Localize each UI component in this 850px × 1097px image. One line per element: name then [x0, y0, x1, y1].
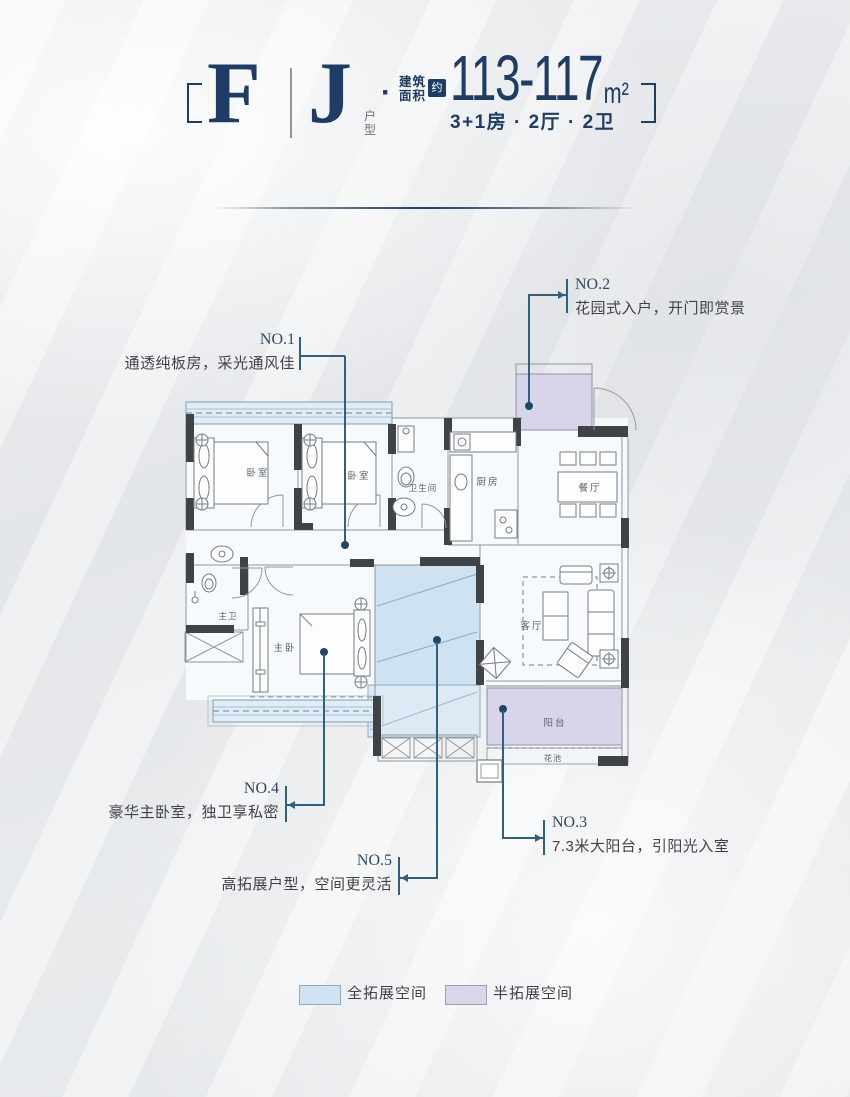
annotation-4-text: 豪华主卧室，独卫享私密 — [79, 801, 279, 822]
anno4-arrow — [288, 801, 295, 809]
annotation-3-text: 7.3米大阳台，引阳光入室 — [552, 835, 752, 856]
annotation-2-text: 花园式入户，开门即赏景 — [575, 297, 775, 318]
wardrobe — [253, 608, 268, 692]
floor-plan-svg: 卧室 卧室 卫生间 厨房 餐厅 主卫 主卧 客厅 阳台 花池 — [170, 360, 640, 792]
anno5-vline — [436, 642, 438, 879]
room-label-dining: 餐厅 — [578, 482, 601, 494]
anno3-tick — [543, 820, 545, 855]
half-expansion-balcony — [487, 688, 622, 745]
annotation-3: NO.3 7.3米大阳台，引阳光入室 — [552, 814, 752, 856]
anno2-dot — [525, 402, 533, 410]
area-value: 113-117 — [450, 46, 602, 110]
anno2-vline — [528, 294, 530, 406]
area-unit: m² — [604, 77, 629, 110]
anno1-tick — [299, 337, 301, 370]
room-label-bathroom: 卫生间 — [409, 483, 438, 493]
area-label-line1: 建筑 — [399, 75, 426, 89]
annotation-5-number: NO.5 — [192, 852, 392, 870]
area-label-line2: 面积 — [399, 89, 426, 103]
annotation-1: NO.1 通透纯板房，采光通风佳 — [95, 331, 295, 373]
anno3-vline — [502, 711, 504, 839]
anno5-arrow — [401, 874, 408, 882]
room-label-master-bedroom: 主卧 — [273, 642, 296, 654]
header-divider-line — [214, 207, 636, 209]
legend-label-half-expansion: 半拓展空间 — [493, 984, 573, 1004]
anno2-tick — [566, 279, 568, 313]
unit-type-suffix: 户型 — [364, 109, 379, 137]
room-label-master-bath: 主卫 — [218, 611, 237, 621]
annotation-4-number: NO.4 — [79, 780, 279, 798]
header-bracket-left — [187, 83, 202, 123]
annotation-5: NO.5 高拓展户型，空间更灵活 — [192, 852, 392, 894]
legend-swatch-full-expansion — [299, 985, 341, 1005]
anno4-tick — [285, 786, 287, 822]
area-approx-badge: 约 — [428, 79, 446, 97]
unit-type-letter-f: F — [207, 50, 261, 138]
annotation-2: NO.2 花园式入户，开门即赏景 — [575, 276, 775, 318]
anno2-arrow — [558, 291, 565, 299]
room-label-kitchen: 厨房 — [476, 476, 499, 488]
annotation-4: NO.4 豪华主卧室，独卫享私密 — [79, 780, 279, 822]
full-expansion-flex-room — [375, 565, 480, 685]
header-dot: · — [381, 78, 391, 108]
annotation-1-number: NO.1 — [95, 331, 295, 349]
annotation-1-text: 通透纯板房，采光通风佳 — [95, 352, 295, 373]
anno1-vline — [344, 356, 346, 546]
header-letter-divider — [290, 68, 292, 138]
annotation-2-number: NO.2 — [575, 276, 775, 294]
area-value-row: 113-117m² — [450, 46, 629, 110]
floorplan-poster: { "header": { "type_letters": ["F", "J"]… — [0, 0, 850, 1097]
anno5-tick — [398, 857, 400, 895]
room-label-bedroom2: 卧室 — [347, 470, 370, 482]
room-label-living: 客厅 — [520, 620, 543, 632]
annotation-5-text: 高拓展户型，空间更灵活 — [192, 873, 392, 894]
annotation-3-number: NO.3 — [552, 814, 752, 832]
room-label-balcony: 阳台 — [543, 717, 566, 729]
anno4-vline — [323, 654, 325, 806]
room-label-bedroom1: 卧室 — [246, 467, 269, 479]
room-label-flower-bed: 花池 — [544, 753, 562, 763]
legend-label-full-expansion: 全拓展空间 — [347, 984, 427, 1004]
anno1-hline — [300, 355, 345, 357]
unit-type-letter-j: J — [308, 50, 352, 138]
layout-config: 3+1房 · 2厅 · 2卫 — [450, 107, 615, 134]
header-bracket-right — [641, 83, 656, 123]
legend-swatch-half-expansion — [445, 985, 487, 1005]
anno3-arrow — [535, 834, 542, 842]
anno1-dot — [341, 541, 349, 549]
